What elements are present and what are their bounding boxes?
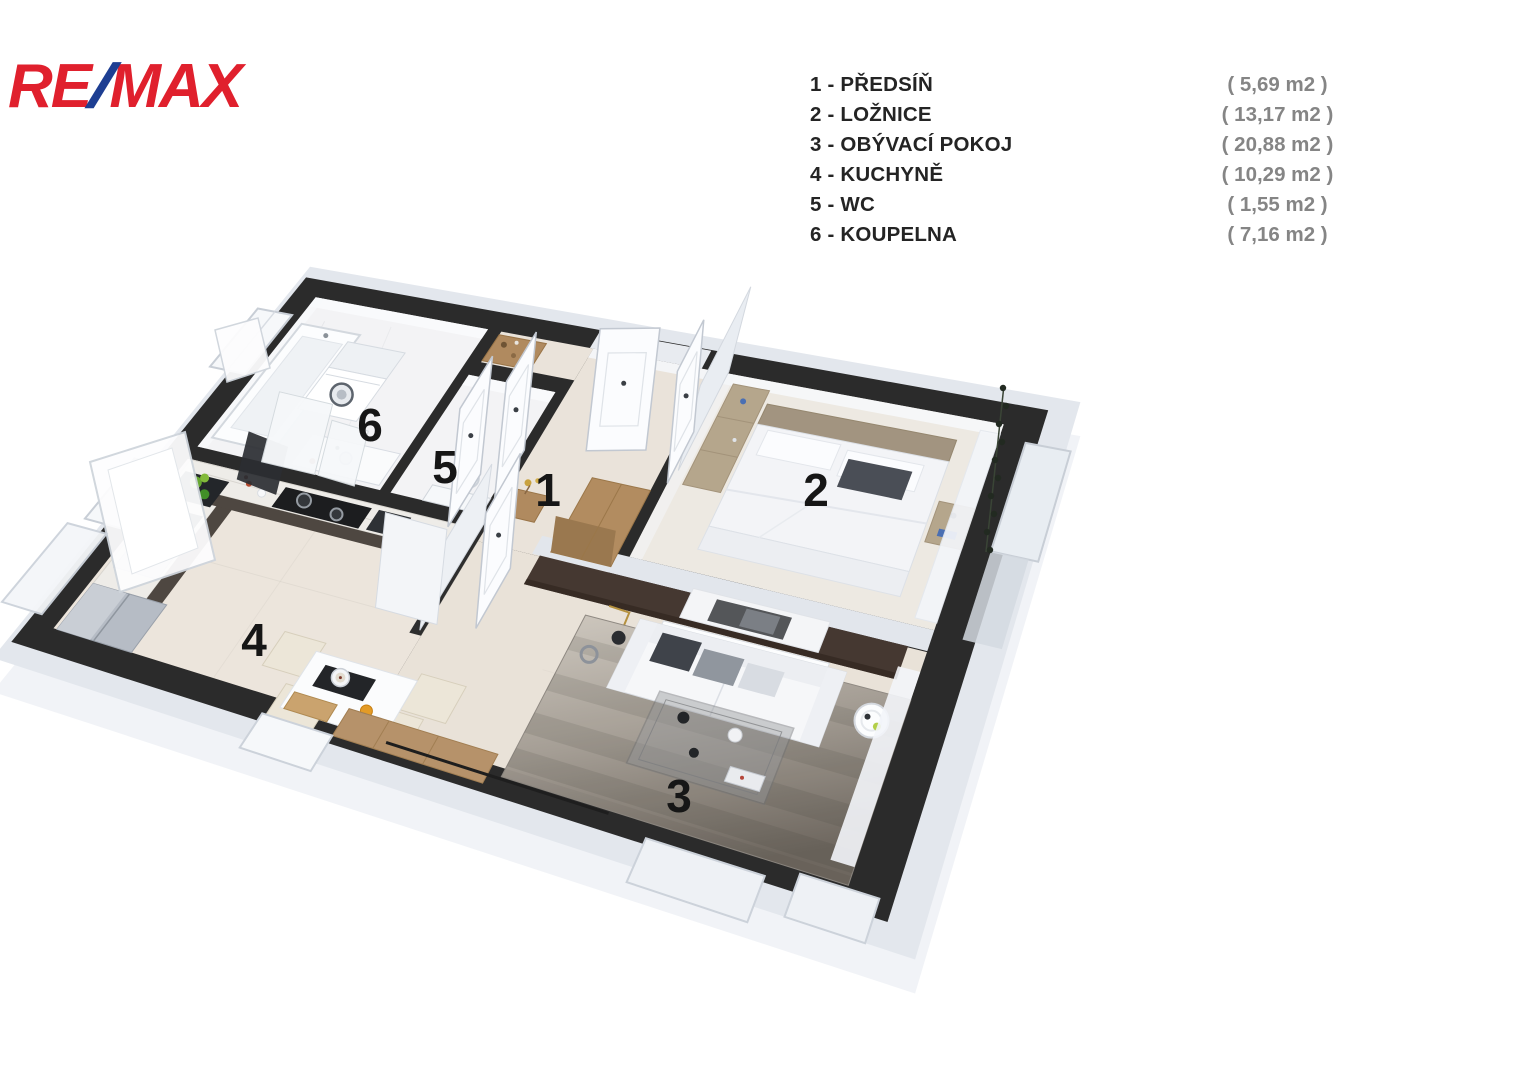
room-number-1: 1 <box>535 464 561 516</box>
room-number-4: 4 <box>241 614 267 666</box>
room-number-3: 3 <box>666 770 692 822</box>
room-number-2: 2 <box>803 464 829 516</box>
room-number-5: 5 <box>432 441 458 493</box>
floorplan-render: 123456 <box>0 0 1527 1080</box>
room-number-6: 6 <box>357 399 383 451</box>
page: { "brand": { "logo_re": "RE", "logo_slas… <box>0 0 1527 1080</box>
